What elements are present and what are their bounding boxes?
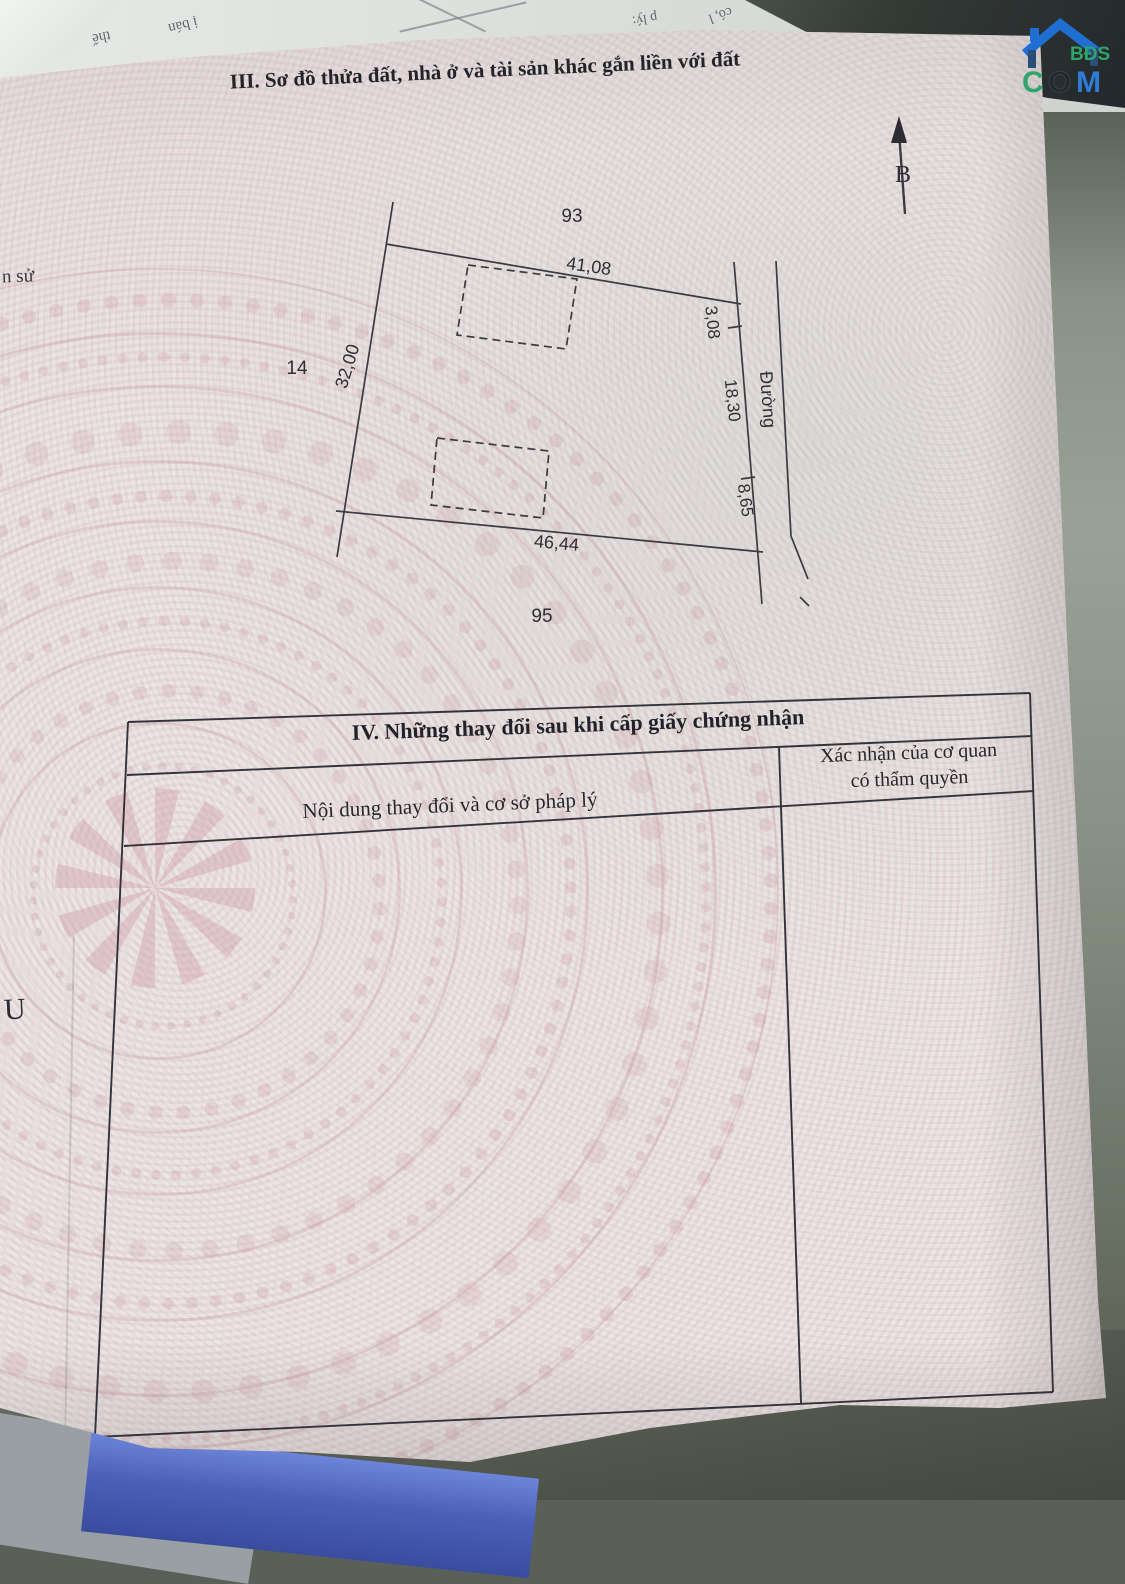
cut-text-fragment: n sử <box>2 265 35 288</box>
watermark-letter-o: O <box>1048 66 1071 99</box>
neighbor-parcel-top: 93 <box>561 206 582 227</box>
photo-of-land-certificate: { "document": { "section3_title": "III. … <box>0 0 1125 1500</box>
certificate-page: 93 14 95 41,08 32,00 46,44 3,08 18,30 8,… <box>0 0 1125 1500</box>
table-column-divider <box>779 747 801 1403</box>
right-segment-length: 18,30 <box>721 378 744 422</box>
paper-text-fragment: ị bán <box>166 13 199 36</box>
parcel-top-edge <box>386 244 741 304</box>
edge-length-left: 32,00 <box>331 342 363 391</box>
road-right-line <box>776 261 808 579</box>
road-end-tick <box>800 597 809 606</box>
watermark-bds-text: BĐS <box>1070 44 1110 65</box>
neighbor-parcel-left: 14 <box>286 358 308 379</box>
road-label: Đường <box>756 371 780 429</box>
segment-tick <box>741 477 755 479</box>
table-col2-header: Xác nhận của cơ quan có thẩm quyền <box>792 736 1026 796</box>
paper-text-fragment: thế <box>90 26 111 46</box>
neighbor-parcel-bottom: 95 <box>531 606 552 627</box>
road-left-line <box>734 262 762 604</box>
watermark-letter-m: M <box>1076 66 1101 99</box>
bdscom-watermark: BĐS C O M <box>1008 4 1125 104</box>
edge-length-bottom: 46,44 <box>533 531 580 555</box>
building-footprint-upper <box>457 265 577 349</box>
cut-text-fragment: U <box>3 992 26 1027</box>
pencil-line <box>399 1 526 32</box>
north-arrow-head <box>891 116 907 143</box>
paper-text-fragment: có, l <box>706 2 734 25</box>
building-footprint-lower <box>431 438 549 518</box>
north-label: B <box>895 162 911 188</box>
right-segment-length: 8,65 <box>734 483 757 518</box>
right-segment-length: 3,08 <box>701 305 723 340</box>
table-left-border <box>95 722 128 1437</box>
watermark-letter-c: C <box>1022 66 1044 99</box>
paper-text-fragment: p lý: <box>631 8 658 28</box>
table-right-border <box>1030 693 1053 1392</box>
